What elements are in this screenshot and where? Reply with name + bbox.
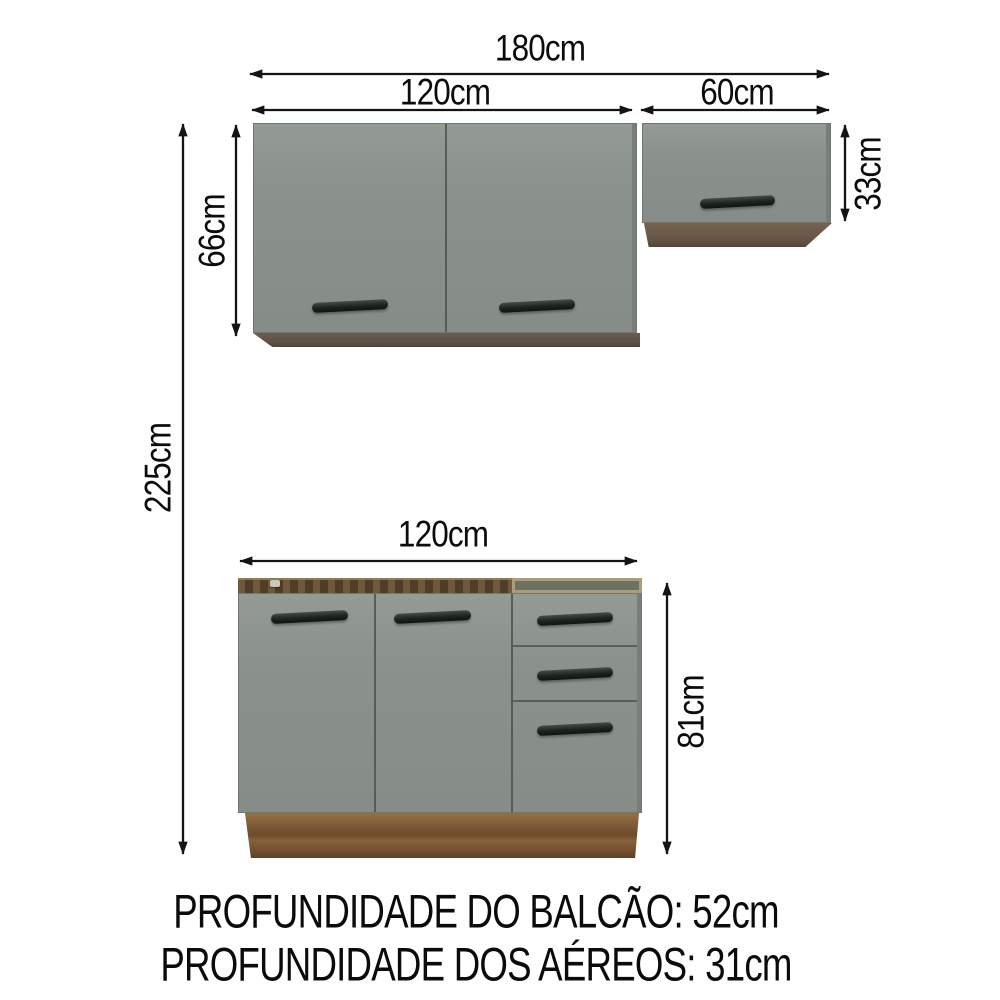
upper-cabinet-door-seam (445, 124, 447, 332)
kitchen-cabinet-dimension-diagram: 180cm 120cm 60cm 66cm 225cm 33cm 120cm 8… (0, 0, 1000, 1000)
base-cabinet-door-seam-1 (374, 594, 376, 812)
base-cabinet-plinth (245, 813, 639, 858)
dim-base-width: 120cm (398, 516, 488, 553)
base-cabinet-door-seam-2 (511, 594, 513, 812)
hinge-fitting-icon (270, 580, 280, 587)
upper-cabinet-120 (253, 123, 637, 333)
drawer-seam-1 (513, 645, 639, 647)
upper-cabinet-underside (253, 333, 640, 347)
base-cabinet-open-sink-section (512, 578, 642, 593)
dim-upper-right-width: 60cm (700, 74, 774, 111)
dim-upper-left-height: 66cm (194, 194, 231, 268)
dim-total-height: 225cm (140, 423, 177, 513)
upper-cabinet-60-underside (642, 223, 832, 247)
drawer-seam-2 (513, 700, 639, 702)
upper-cabinet-side-panel (632, 124, 636, 332)
depth-note-balcao: PROFUNDIDADE DO BALCÃO: 52cm (173, 888, 779, 935)
dim-upper-right-height: 33cm (850, 137, 887, 211)
upper-cabinet-60 (642, 123, 831, 223)
depth-note-aereos: PROFUNDIDADE DOS AÉREOS: 31cm (160, 941, 791, 988)
upper-cabinet-60-side-panel (826, 124, 830, 222)
dim-upper-left-width: 120cm (400, 74, 490, 111)
base-cabinet-120 (238, 593, 642, 813)
base-cabinet-side-panel (637, 594, 641, 812)
dim-total-width: 180cm (495, 30, 585, 67)
dim-base-height: 81cm (673, 675, 710, 749)
